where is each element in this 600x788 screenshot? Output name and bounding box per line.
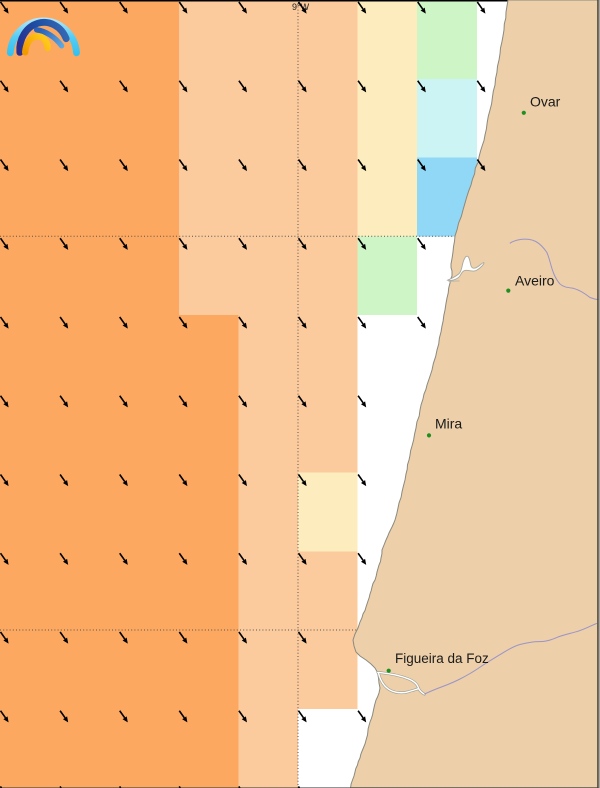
svg-text:Aveiro: Aveiro (515, 273, 555, 289)
svg-text:Mira: Mira (435, 416, 462, 432)
svg-text:Ovar: Ovar (530, 94, 561, 110)
svg-text:Figueira da Foz: Figueira da Foz (395, 651, 489, 666)
svg-text:9°W: 9°W (292, 2, 310, 12)
